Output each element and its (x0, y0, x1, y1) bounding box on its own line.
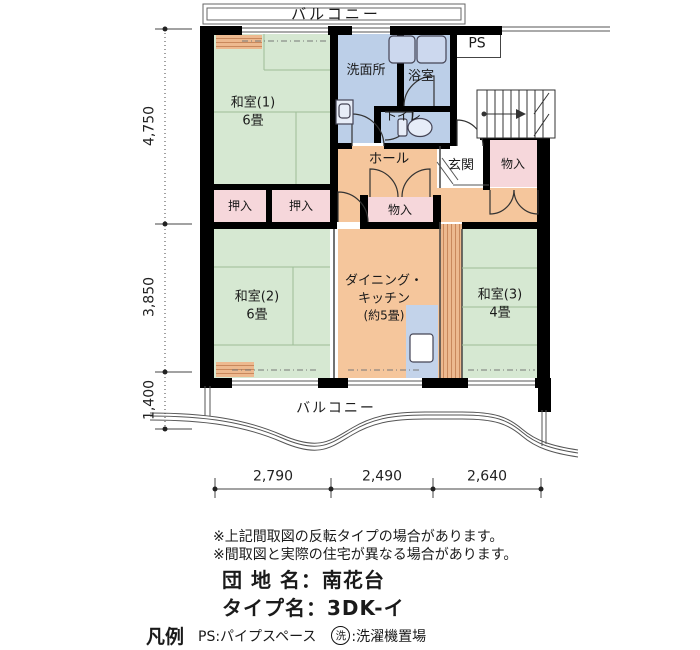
legend-wash-text: :洗濯機置場 (351, 626, 426, 646)
washitsu3-size: 4畳 (478, 304, 522, 322)
legend-ps-item: PS:パイプスペース (198, 626, 316, 646)
legend-wash-item: 洗:洗濯機置場 (330, 626, 426, 646)
balcony-top-label: バルコニー (291, 4, 381, 24)
stairs-icon (477, 90, 555, 138)
dk-name-line1: ダイニング・ (345, 272, 423, 290)
disclaimer-line-2: ※間取図と実際の住宅が異なる場合があります。 (213, 546, 517, 564)
senmenjo-label: 洗面所 (346, 62, 385, 80)
bathroom-label: 浴室 (408, 68, 434, 86)
storage-center-label: 物入 (388, 202, 412, 218)
washitsu2-name: 和室(2) (235, 288, 279, 306)
dim-left-top: 4,750 (141, 106, 160, 146)
dk-label: ダイニング・ キッチン (約5畳) (345, 272, 423, 323)
striped-passage (440, 224, 462, 378)
washitsu1-label: 和室(1) 6畳 (231, 94, 275, 129)
wash-circle-mark: 洗 (331, 626, 350, 645)
corridor-right (437, 188, 537, 222)
dim-bottom-mid: 2,490 (362, 468, 402, 487)
hall-label: ホール (369, 150, 410, 168)
type-name-value: 3DK-イ (327, 596, 405, 620)
dk-size: (約5畳) (345, 307, 423, 323)
dim-bottom-left: 2,790 (253, 468, 293, 487)
washitsu1-name: 和室(1) (231, 94, 275, 112)
estate-name-value: 南花台 (322, 568, 385, 592)
dim-bottom-right: 2,640 (467, 468, 507, 487)
dk-name-line2: キッチン (345, 290, 423, 308)
tokonoma-strip-washitsu1 (216, 35, 262, 49)
disclaimer-notes: ※上記間取図の反転タイプの場合があります。 ※間取図と実際の住宅が異なる場合があ… (213, 528, 517, 565)
legend-title: 凡例 (146, 622, 184, 649)
tokonoma-strip-washitsu2 (216, 362, 254, 377)
room-senmenjo-lower (338, 109, 374, 143)
storage-right-label: 物入 (501, 156, 525, 172)
closet1-label: 押入 (228, 198, 252, 214)
balcony-bottom-rail (150, 386, 578, 457)
dim-left-bottom: 1,400 (141, 380, 160, 420)
ps-label: PS (468, 35, 485, 54)
type-name-line: タイプ名：3DK-イ (222, 592, 405, 621)
estate-name-label: 団 地 名： (222, 568, 322, 592)
washitsu3-name: 和室(3) (478, 286, 522, 304)
toilet-label: トイレ (385, 108, 421, 124)
closet2-label: 押入 (289, 198, 313, 214)
dim-left-mid: 3,850 (141, 277, 160, 317)
genkan-label: 玄関 (448, 157, 474, 175)
washitsu2-label: 和室(2) 6畳 (235, 288, 279, 323)
disclaimer-line-1: ※上記間取図の反転タイプの場合があります。 (213, 528, 517, 546)
estate-name-line: 団 地 名：南花台 (222, 564, 385, 593)
legend: 凡例 PS:パイプスペース 洗:洗濯機置場 (146, 622, 426, 649)
washitsu1-size: 6畳 (231, 112, 275, 130)
type-name-label: タイプ名： (222, 596, 327, 620)
washitsu2-size: 6畳 (235, 306, 279, 324)
floor-plan-page: { "plan": { "balcony_top": "バルコニー", "bal… (0, 0, 700, 650)
washitsu3-label: 和室(3) 4畳 (478, 286, 522, 321)
balcony-bottom-label: バルコニー (296, 400, 376, 419)
